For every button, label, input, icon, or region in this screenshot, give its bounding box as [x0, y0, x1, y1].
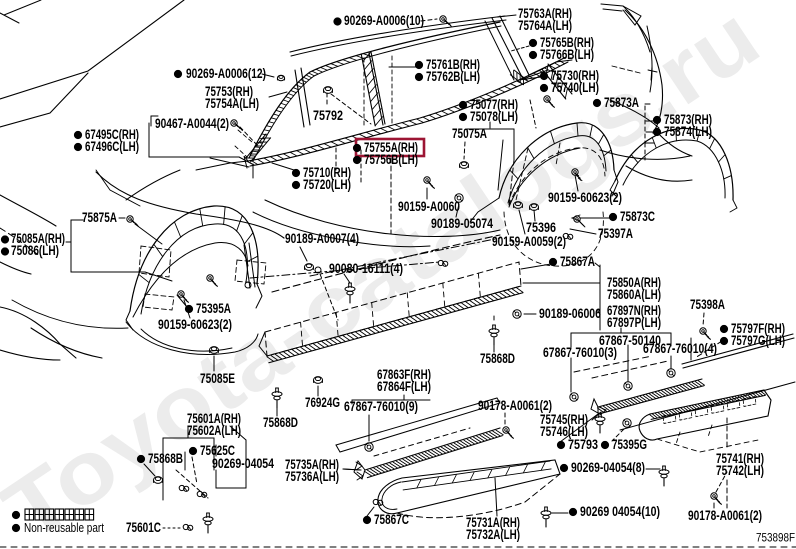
svg-text:75762B(LH): 75762B(LH)	[426, 69, 480, 85]
svg-text:75875A: 75875A	[82, 210, 117, 226]
svg-text:75086(LH): 75086(LH)	[11, 243, 59, 259]
svg-text:75868D: 75868D	[480, 351, 515, 367]
svg-text:90159-60623(2): 90159-60623(2)	[548, 190, 622, 206]
svg-text:67867-76010(9): 67867-76010(9)	[344, 399, 418, 415]
svg-text:90178-A0061(2): 90178-A0061(2)	[688, 508, 762, 524]
svg-text:90269 04054(10): 90269 04054(10)	[580, 504, 660, 520]
svg-text:75764A(LH): 75764A(LH)	[518, 18, 572, 34]
svg-text:75754A(LH): 75754A(LH)	[205, 96, 259, 112]
svg-text:75793: 75793	[568, 437, 598, 453]
svg-text:90159-A0059(2): 90159-A0059(2)	[492, 234, 566, 250]
svg-text:90269-A0006(12): 90269-A0006(12)	[186, 66, 266, 82]
svg-text:75873C: 75873C	[620, 209, 655, 225]
svg-text:90189-06006: 90189-06006	[539, 306, 601, 322]
svg-text:90189-05074: 90189-05074	[431, 216, 493, 232]
svg-text:75867A: 75867A	[560, 254, 595, 270]
svg-text:90159-60623(2): 90159-60623(2)	[158, 317, 232, 333]
svg-text:75397A: 75397A	[598, 226, 633, 242]
svg-text:Non-reusable part: Non-reusable part	[24, 521, 104, 535]
svg-text:67867-76010(3): 67867-76010(3)	[543, 345, 617, 361]
svg-text:67867-76010(4): 67867-76010(4)	[643, 341, 717, 357]
svg-text:75766B(LH): 75766B(LH)	[540, 47, 594, 63]
svg-text:753898F: 753898F	[756, 531, 795, 545]
svg-text:75602A(LH): 75602A(LH)	[187, 423, 241, 439]
svg-text:90080-16111(4): 90080-16111(4)	[329, 261, 403, 277]
svg-text:75078(LH): 75078(LH)	[470, 109, 518, 125]
svg-text:75873A: 75873A	[604, 95, 639, 111]
svg-text:75868B: 75868B	[148, 451, 183, 467]
svg-text:90159-A0060: 90159-A0060	[398, 199, 460, 215]
svg-text:90467-A0044(2): 90467-A0044(2)	[155, 116, 229, 132]
svg-text:75867C: 75867C	[374, 512, 409, 528]
svg-text:67496C(LH): 67496C(LH)	[85, 139, 139, 155]
svg-text:67897P(LH): 67897P(LH)	[607, 315, 661, 331]
svg-text:75742(LH): 75742(LH)	[716, 463, 764, 479]
svg-text:75797G(LH): 75797G(LH)	[731, 333, 785, 349]
svg-text:90269-04054: 90269-04054	[212, 456, 274, 472]
svg-text:75398A: 75398A	[690, 297, 725, 313]
svg-text:75868D: 75868D	[263, 415, 298, 431]
svg-text:75395A: 75395A	[196, 301, 231, 317]
svg-text:75732A(LH): 75732A(LH)	[466, 527, 520, 543]
svg-text:75792: 75792	[313, 108, 343, 124]
svg-text:90269-A0006(10): 90269-A0006(10)	[344, 13, 424, 29]
svg-text:67864F(LH): 67864F(LH)	[377, 379, 431, 395]
svg-text:90269-04054(8): 90269-04054(8)	[571, 460, 645, 476]
svg-text:75740(LH): 75740(LH)	[551, 80, 599, 96]
svg-text:75395G: 75395G	[612, 437, 647, 453]
svg-text:75075A: 75075A	[452, 126, 487, 142]
svg-text:75874(LH): 75874(LH)	[664, 124, 712, 140]
svg-text:75601C: 75601C	[126, 520, 161, 536]
svg-text:90189-A0007(4): 90189-A0007(4)	[285, 231, 359, 247]
svg-text:75736A(LH): 75736A(LH)	[285, 469, 339, 485]
svg-text:75720(LH): 75720(LH)	[303, 177, 351, 193]
svg-text:75085E: 75085E	[200, 371, 235, 387]
svg-text:76924G: 76924G	[305, 395, 340, 411]
svg-text:75860A(LH): 75860A(LH)	[607, 287, 661, 303]
svg-text:75756B(LH): 75756B(LH)	[364, 152, 418, 168]
